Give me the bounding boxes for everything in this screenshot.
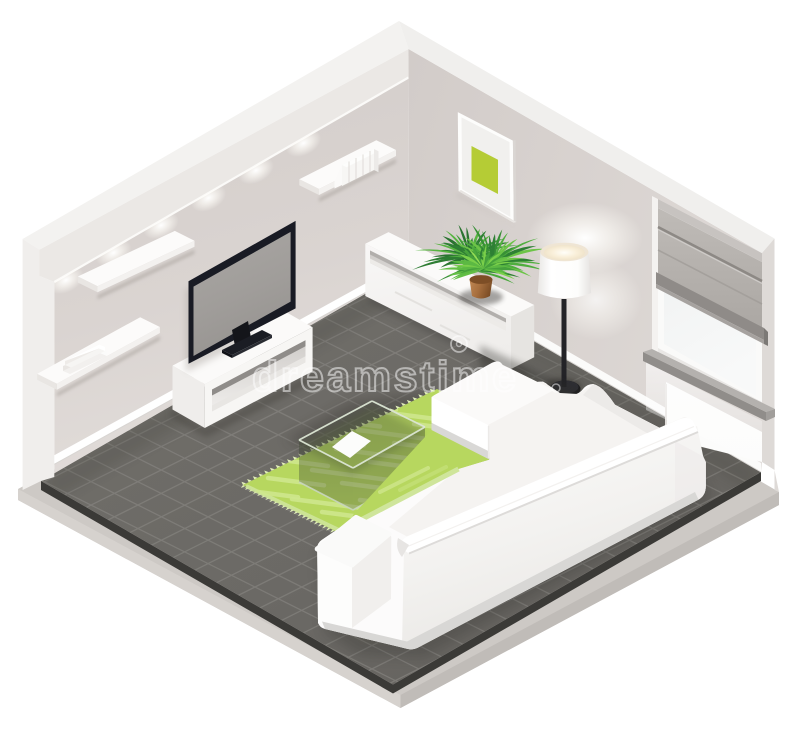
svg-text:dreamstime: dreamstime xyxy=(252,353,518,401)
